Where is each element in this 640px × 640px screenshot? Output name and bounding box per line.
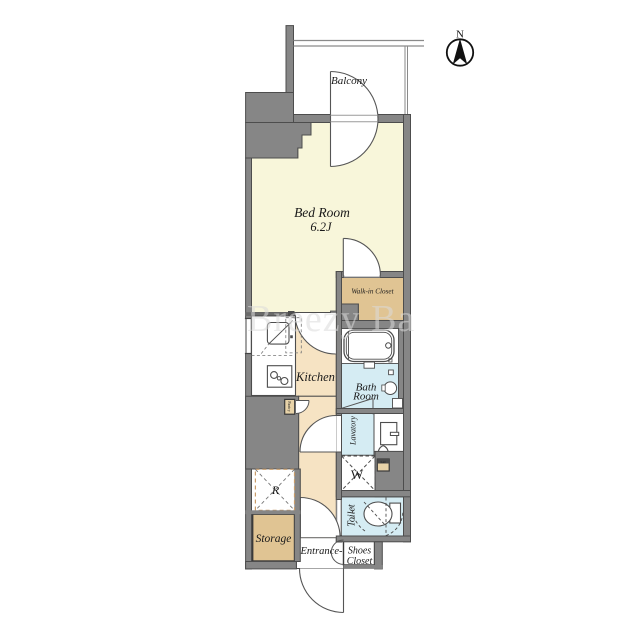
- svg-text:Bed Room: Bed Room: [294, 205, 350, 220]
- svg-text:Walk-in Closet: Walk-in Closet: [351, 288, 394, 296]
- svg-text:Balcony: Balcony: [331, 75, 367, 87]
- svg-text:R: R: [271, 483, 280, 497]
- svg-text:Lavatory: Lavatory: [349, 416, 358, 446]
- svg-text:Closet: Closet: [347, 556, 373, 567]
- svg-text:Entrance-: Entrance-: [300, 546, 343, 557]
- svg-text:Pantry: Pantry: [287, 401, 292, 411]
- svg-text:Storage: Storage: [256, 533, 292, 545]
- svg-text:N: N: [456, 29, 464, 41]
- svg-text:Kitchen: Kitchen: [295, 370, 335, 384]
- svg-text:Breezy Ba: Breezy Ba: [247, 298, 415, 340]
- svg-text:6.2J: 6.2J: [310, 220, 333, 234]
- svg-text:Lav: Lav: [380, 460, 386, 464]
- svg-text:Shoes: Shoes: [348, 546, 371, 557]
- svg-text:W: W: [351, 467, 364, 482]
